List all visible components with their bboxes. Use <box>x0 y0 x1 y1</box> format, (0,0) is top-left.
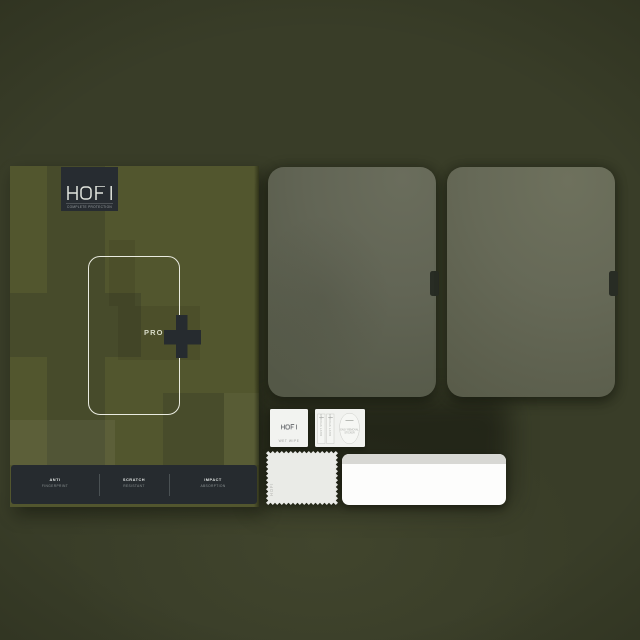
svg-text:DUST STICKER: DUST STICKER <box>319 413 323 436</box>
svg-text:HOFI: HOFI <box>269 483 274 496</box>
svg-text:DUST STICKER: DUST STICKER <box>328 413 332 436</box>
svg-text:STICKER: STICKER <box>344 432 355 435</box>
